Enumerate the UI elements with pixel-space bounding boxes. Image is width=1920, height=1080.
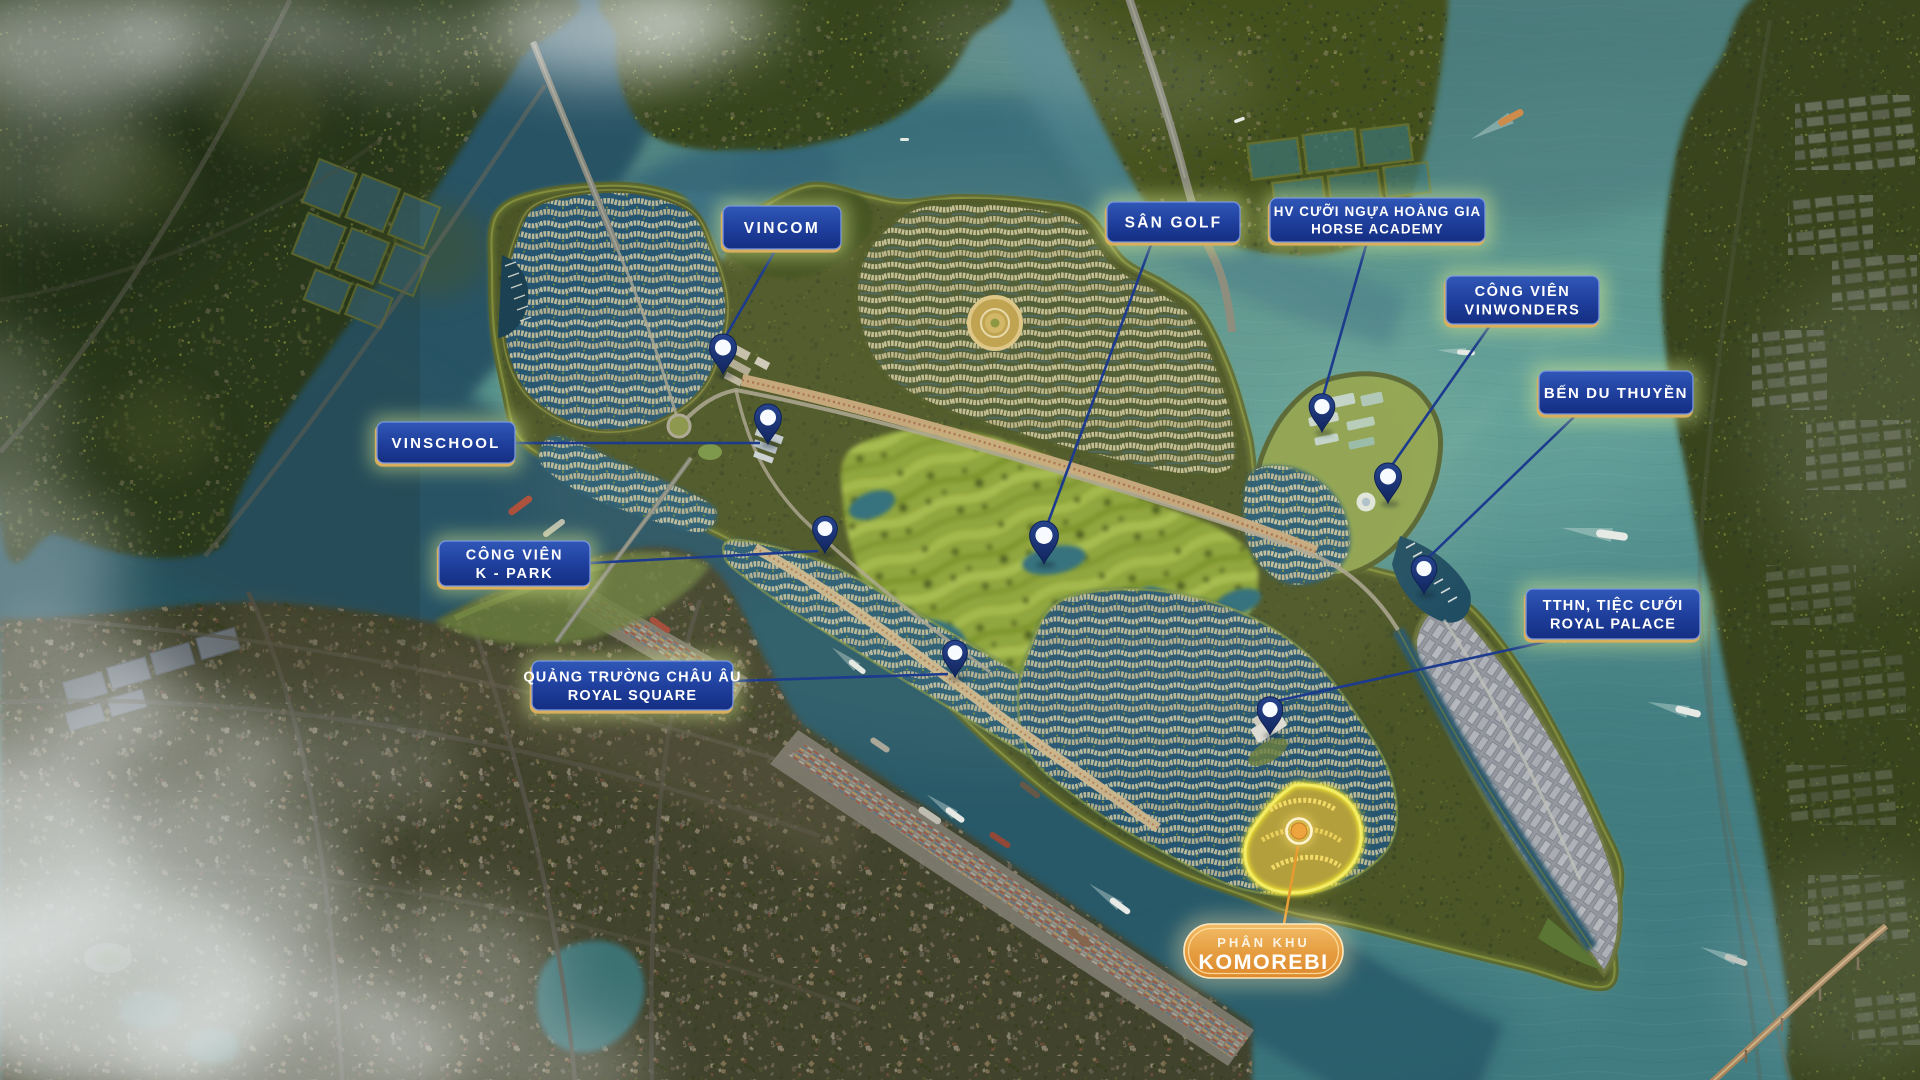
svg-text:BẾN DU THUYỀN: BẾN DU THUYỀN (1544, 385, 1688, 402)
svg-text:VINWONDERS: VINWONDERS (1465, 303, 1581, 319)
svg-text:ROYAL PALACE: ROYAL PALACE (1550, 617, 1676, 633)
svg-text:KOMOREBI: KOMOREBI (1198, 950, 1328, 974)
svg-text:CÔNG VIÊN: CÔNG VIÊN (1475, 282, 1571, 300)
svg-text:HV CƯỠI NGỰA HOÀNG GIA: HV CƯỠI NGỰA HOÀNG GIA (1274, 204, 1482, 219)
svg-text:SÂN GOLF: SÂN GOLF (1125, 214, 1223, 232)
svg-text:VINSCHOOL: VINSCHOOL (392, 435, 501, 452)
svg-text:TTHN, TIỆC CƯỚI: TTHN, TIỆC CƯỚI (1543, 596, 1684, 614)
svg-text:CÔNG VIÊN: CÔNG VIÊN (466, 545, 564, 563)
svg-text:ROYAL SQUARE: ROYAL SQUARE (568, 688, 698, 704)
svg-text:HORSE ACADEMY: HORSE ACADEMY (1311, 222, 1444, 237)
svg-text:QUẢNG TRƯỜNG CHÂU ÂU: QUẢNG TRƯỜNG CHÂU ÂU (523, 667, 741, 685)
svg-text:VINCOM: VINCOM (744, 220, 820, 237)
svg-text:PHÂN KHU: PHÂN KHU (1217, 935, 1310, 950)
svg-text:K - PARK: K - PARK (476, 566, 554, 582)
